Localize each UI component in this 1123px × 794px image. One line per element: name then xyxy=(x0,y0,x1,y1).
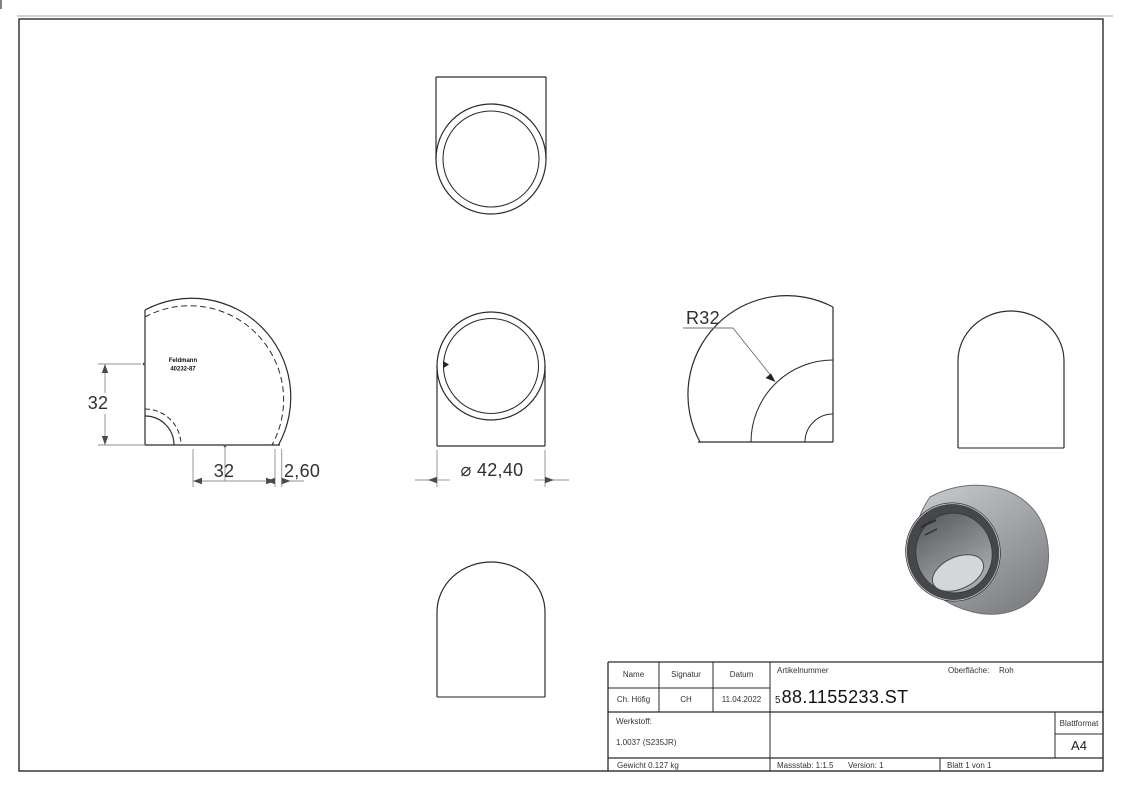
titleblock-version: Version: 1 xyxy=(848,761,884,770)
titleblock-name-label: Name xyxy=(608,670,659,679)
titleblock-oberflaeche-value: Roh xyxy=(999,666,1014,675)
top-view xyxy=(436,77,546,214)
side-view-dimensions xyxy=(98,363,304,487)
titleblock-datum-value: 11.04.2022 xyxy=(713,695,770,704)
surface-mark xyxy=(443,361,449,368)
titleblock-datum-label: Datum xyxy=(713,670,770,679)
titleblock-oberflaeche-label: Oberfläche: xyxy=(948,666,989,675)
r32-leader xyxy=(683,328,776,382)
part-stamp-line1: Feldmann xyxy=(158,357,208,365)
dimension-outer-diameter: ⌀ 42,40 xyxy=(448,460,536,481)
dimension-height-32: 32 xyxy=(80,393,116,414)
titleblock-massstab: Massstab: 1:1.5 xyxy=(777,761,833,770)
drawing-page: 32 32 2,60 ⌀ 42,40 R32 Feldmann 40232-87… xyxy=(0,0,1123,794)
titleblock-werkstoff-label: Werkstoff: xyxy=(616,717,652,726)
titleblock-name-value: Ch. Höfig xyxy=(608,695,659,704)
artikelnummer-value: 88.1155233.ST xyxy=(782,688,909,706)
titleblock-werkstoff-value: 1.0037 (S235JR) xyxy=(616,738,676,747)
part-stamp: Feldmann 40232-87 xyxy=(158,357,208,374)
bottom-view xyxy=(437,562,545,697)
titleblock-gewicht: Gewicht 0.127 kg xyxy=(617,761,679,770)
titleblock-signatur-label: Signatur xyxy=(659,670,713,679)
titleblock-blatt: Blatt 1 von 1 xyxy=(947,761,991,770)
front-view xyxy=(437,312,545,446)
part-stamp-line2: 40232-87 xyxy=(158,365,208,373)
iso-3d-render xyxy=(896,485,1049,614)
titleblock-blattformat-label: Blattformat xyxy=(1055,719,1103,728)
artikelnummer-prefix: 5 xyxy=(775,696,781,706)
end-view xyxy=(958,311,1064,448)
dimension-bend-radius: R32 xyxy=(686,308,720,329)
titleblock-artikelnummer-label: Artikelnummer xyxy=(777,666,829,675)
dimension-wall-thickness: 2,60 xyxy=(284,461,320,482)
sheet-frame xyxy=(1,0,1113,771)
titleblock-artikelnummer: 5 88.1155233.ST xyxy=(775,688,909,706)
dimension-width-32: 32 xyxy=(207,461,241,482)
titleblock-blattformat-value: A4 xyxy=(1055,738,1103,753)
titleblock-signatur-value: CH xyxy=(659,695,713,704)
